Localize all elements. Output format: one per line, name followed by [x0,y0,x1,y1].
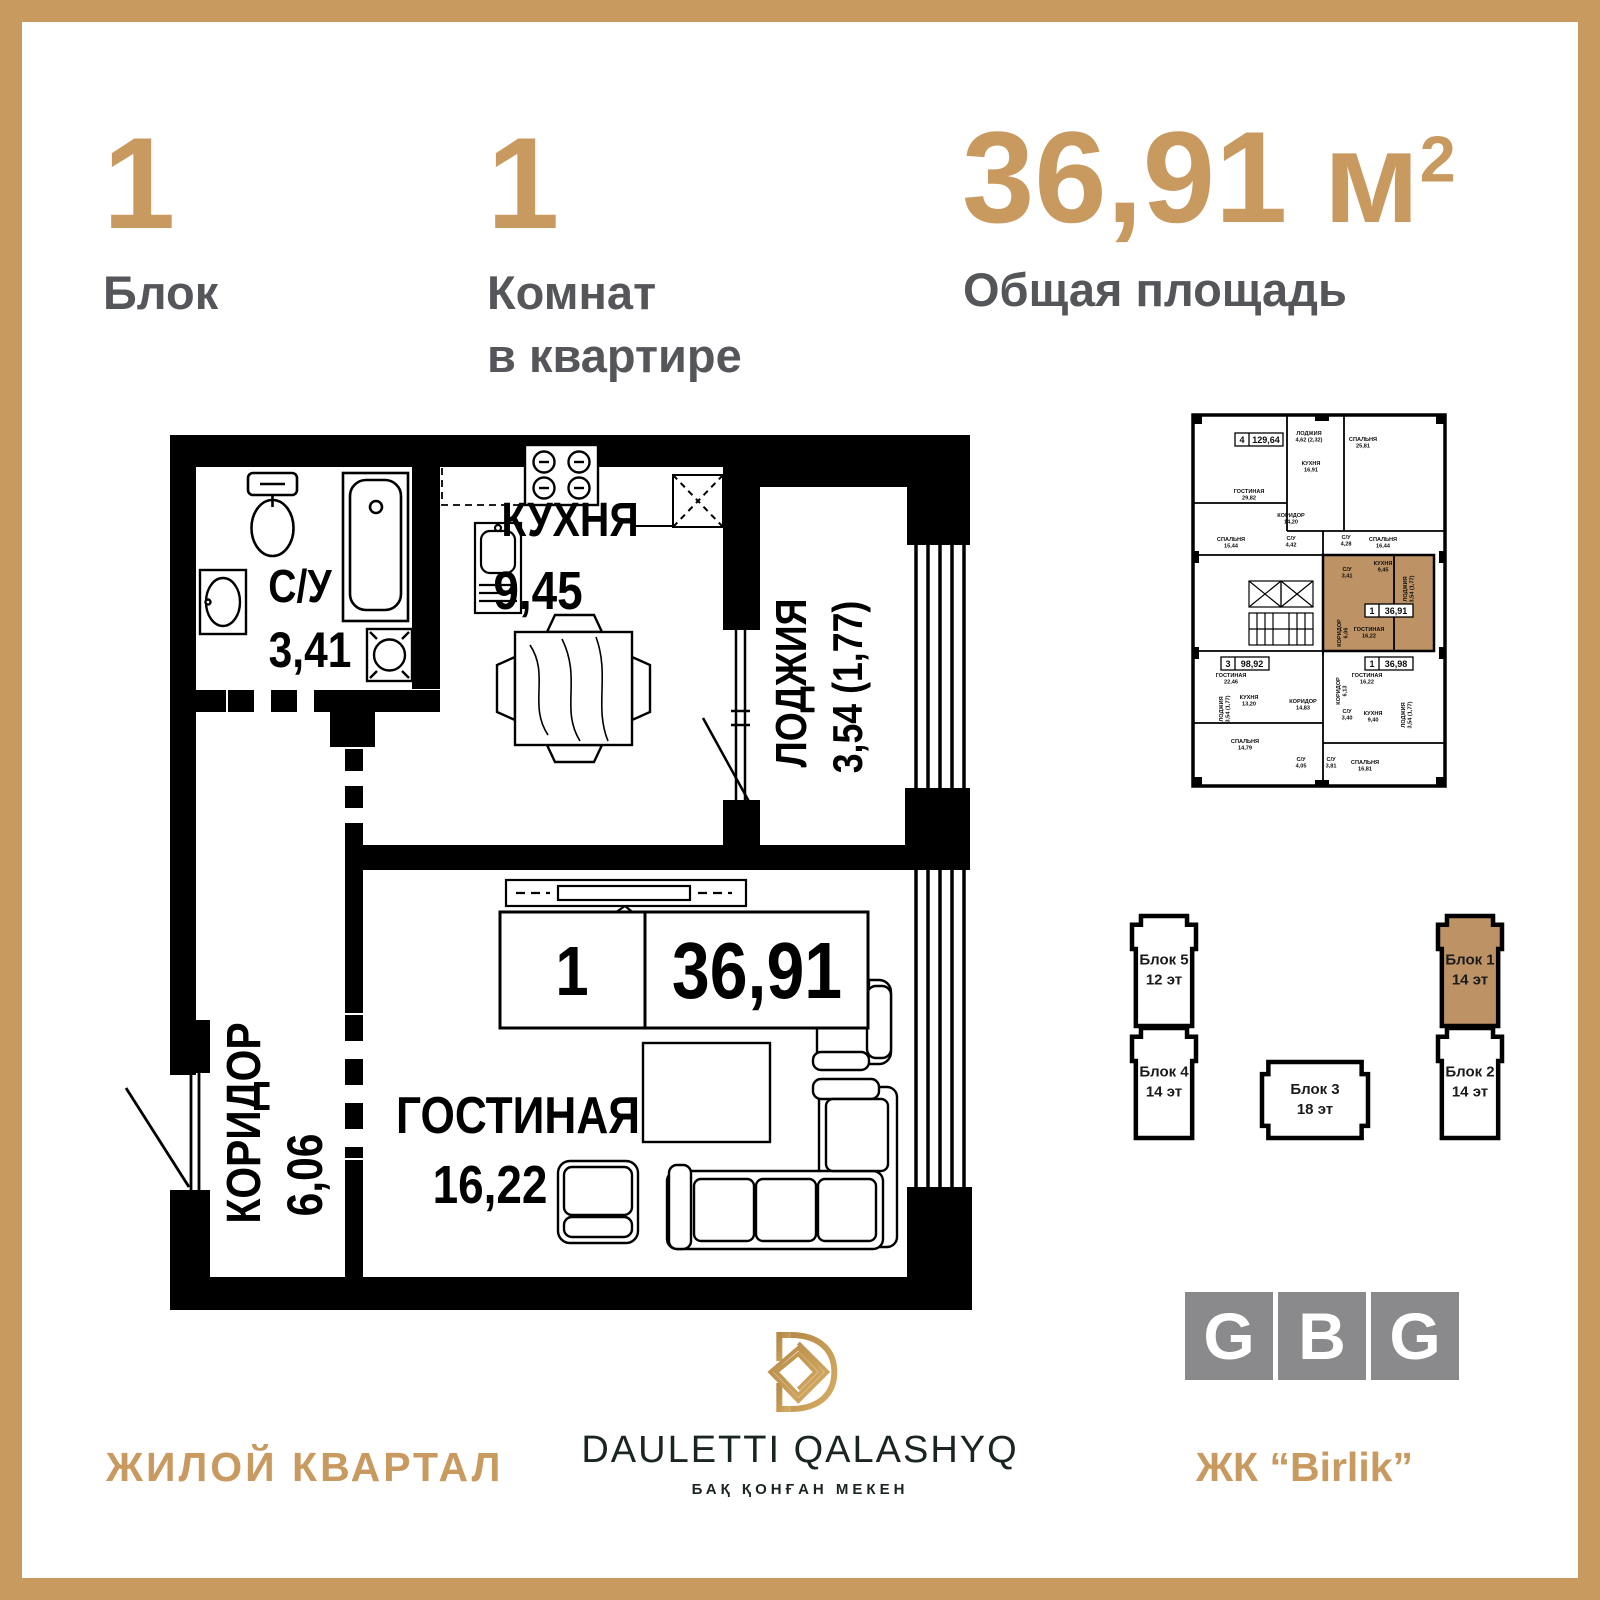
svg-text:25,81: 25,81 [1356,444,1370,450]
svg-text:КОРИДОР: КОРИДОР [1336,677,1342,705]
block-number: 1 [103,118,175,248]
svg-text:Блок 2: Блок 2 [1445,1063,1494,1080]
svg-text:4,28: 4,28 [1341,542,1352,548]
svg-text:С/У: С/У [1296,757,1306,763]
room-label-loggia: ЛОДЖИЯ 3,54 (1,77) [766,598,872,773]
svg-text:9,45: 9,45 [493,561,582,621]
svg-text:29,82: 29,82 [1242,496,1256,502]
svg-text:СПАЛЬНЯ: СПАЛЬНЯ [1369,537,1397,543]
room-label-corridor: КОРИДОР 6,06 [218,1022,333,1223]
svg-text:Блок 4: Блок 4 [1139,1063,1189,1080]
brand-logo: DAULETTI QALASHYQ БАҚ ҚОНҒАН МЕКЕН [581,1330,1018,1498]
block-item: Блок 318 эт [1262,1062,1368,1138]
brand-d-mark-icon [760,1330,840,1414]
svg-text:КУХНЯ: КУХНЯ [1302,461,1321,467]
room-label-bathroom: С/У 3,41 [268,561,351,678]
toilet-icon [248,473,297,556]
living-window-icon [916,870,964,1187]
svg-text:14,20: 14,20 [1284,520,1298,526]
svg-text:ЛОДЖИЯ: ЛОДЖИЯ [766,598,816,767]
complex-name-label: ЖК “Birlik” [1196,1444,1413,1491]
mini-room-label: С/У4,42 [1286,536,1297,549]
total-area-label: Общая площадь [963,262,1347,317]
svg-text:ГОСТИНАЯ: ГОСТИНАЯ [1216,673,1247,679]
svg-text:ГОСТИНАЯ: ГОСТИНАЯ [1354,627,1385,633]
svg-text:Блок 1: Блок 1 [1445,951,1494,968]
svg-text:9,40: 9,40 [1368,718,1379,724]
svg-text:С/У: С/У [1342,709,1352,715]
block-number-label: Блок [103,262,218,325]
svg-text:ГОСТИНАЯ: ГОСТИНАЯ [1234,489,1265,495]
residential-quarter-label: ЖИЛОЙ КВАРТАЛ [106,1444,503,1491]
svg-text:14,83: 14,83 [1296,706,1310,712]
svg-text:КОРИДОР: КОРИДОР [1289,699,1317,705]
svg-text:СПАЛЬНЯ: СПАЛЬНЯ [1349,437,1377,443]
block-item: Блок 512 эт [1132,916,1196,1026]
svg-text:КУХНЯ: КУХНЯ [1364,711,1383,717]
svg-text:КОРИДОР: КОРИДОР [1337,619,1343,647]
svg-text:3,54 (1,77): 3,54 (1,77) [1226,695,1232,722]
block-item: Блок 114 эт [1438,916,1502,1026]
svg-text:1: 1 [1369,606,1374,616]
svg-text:129,64: 129,64 [1252,435,1280,445]
rooms-number: 1 [487,118,559,248]
svg-text:16,91: 16,91 [1304,468,1318,474]
svg-text:1: 1 [1369,659,1374,669]
svg-text:КУХНЯ: КУХНЯ [501,494,638,547]
svg-text:3: 3 [1225,659,1230,669]
svg-text:ЛОДЖИЯ: ЛОДЖИЯ [1401,702,1407,727]
mini-room-label: ЛОДЖИЯ3,54 (1,77) [1401,701,1414,728]
svg-text:3,54 (1,77): 3,54 (1,77) [1410,575,1416,602]
svg-text:14 эт: 14 эт [1452,1083,1488,1100]
svg-text:98,92: 98,92 [1241,659,1264,669]
coffee-table-icon [643,1043,770,1142]
svg-text:22,46: 22,46 [1224,680,1238,686]
unit-area: 36,91 [672,926,842,1015]
mini-unit-label-box: 136,91 [1365,604,1413,617]
svg-text:16,44: 16,44 [1376,544,1391,550]
mini-floor-plan: 4129,64398,92136,91136,98 ГОСТИНАЯ29,82Л… [1190,413,1448,789]
svg-text:КОРИДОР: КОРИДОР [1277,513,1305,519]
svg-text:СПАЛЬНЯ: СПАЛЬНЯ [1217,537,1245,543]
svg-text:18 эт: 18 эт [1297,1101,1333,1118]
rooms-label-line2: в квартире [487,325,742,388]
unit-number: 1 [555,931,588,1010]
svg-text:ГОСТИНАЯ: ГОСТИНАЯ [1352,673,1383,679]
svg-text:16,22: 16,22 [1362,634,1376,640]
svg-text:ЛОДЖИЯ: ЛОДЖИЯ [1219,696,1225,721]
corner-cabinet-icon [632,475,723,527]
svg-text:13,20: 13,20 [1242,702,1256,708]
svg-text:3,40: 3,40 [1342,716,1353,722]
svg-text:16,81: 16,81 [1358,767,1372,773]
svg-text:Блок 5: Блок 5 [1139,951,1188,968]
svg-text:КОРИДОР: КОРИДОР [218,1022,271,1223]
mini-room-label: С/У3,41 [1342,567,1353,580]
mini-room-label: С/У4,05 [1296,757,1307,770]
total-area-value: 36,91 м2 [962,112,1456,242]
svg-text:Блок 3: Блок 3 [1290,1081,1339,1098]
mini-room-label: ЛОДЖИЯ4,62 (2,32) [1295,431,1322,444]
svg-text:3,41: 3,41 [269,622,352,678]
svg-text:12 эт: 12 эт [1146,971,1182,988]
mini-room-label: ЛОДЖИЯ3,54 (1,77) [1403,575,1416,602]
gbg-letter-square: G [1185,1292,1273,1380]
mini-unit-label-box: 136,98 [1365,657,1413,670]
gbg-letter-square: G [1371,1292,1459,1380]
mini-room-label: С/У3,40 [1342,709,1353,722]
svg-text:С/У: С/У [1342,567,1352,573]
svg-text:3,54 (1,77): 3,54 (1,77) [1408,701,1414,728]
svg-text:36,91: 36,91 [1385,606,1408,616]
svg-text:6,13: 6,13 [1343,686,1349,697]
mini-room-label: КУХНЯ16,91 [1302,461,1321,474]
block-item: Блок 414 эт [1132,1028,1196,1138]
svg-text:14 эт: 14 эт [1452,971,1488,988]
svg-text:4,05: 4,05 [1296,764,1307,770]
total-area-number: 36,91 м [962,104,1420,250]
svg-text:4,42: 4,42 [1286,543,1297,549]
svg-text:СПАЛЬНЯ: СПАЛЬНЯ [1231,739,1259,745]
svg-text:16,22: 16,22 [433,1155,548,1215]
washing-machine-icon [367,629,412,681]
rooms-label-line1: Комнат [487,262,742,325]
gbg-letter-square: B [1278,1292,1366,1380]
svg-text:С/У: С/У [1341,535,1351,541]
svg-text:9,45: 9,45 [1378,568,1389,574]
svg-text:6,06: 6,06 [1344,628,1350,639]
main-floor-plan: 1 36,91 С/У 3,41 КУХНЯ 9,45 ЛОДЖИЯ 3,54 … [110,435,975,1310]
svg-text:4,62 (2,32): 4,62 (2,32) [1295,438,1322,444]
svg-text:16,22: 16,22 [1360,680,1374,686]
svg-text:6,06: 6,06 [277,1134,333,1217]
svg-text:3,41: 3,41 [1342,574,1353,580]
bathroom-sink-icon [200,570,246,634]
entrance-door-icon [126,1073,199,1190]
bathtub-icon [343,473,408,621]
mini-room-label: С/У4,28 [1341,535,1352,548]
dining-table-icon [497,615,650,762]
svg-text:ГОСТИНАЯ: ГОСТИНАЯ [396,1087,640,1145]
svg-text:ЛОДЖИЯ: ЛОДЖИЯ [1296,431,1321,437]
total-area-superscript: 2 [1420,123,1456,196]
mini-unit-label-box: 4129,64 [1235,433,1283,446]
mini-room-label: ЛОДЖИЯ3,54 (1,77) [1219,695,1232,722]
mini-unit-label-box: 398,92 [1221,657,1269,670]
mini-room-label: КУХНЯ13,20 [1240,695,1259,708]
svg-text:3,81: 3,81 [1326,764,1337,770]
svg-text:КУХНЯ: КУХНЯ [1240,695,1259,701]
svg-text:14,79: 14,79 [1238,746,1252,752]
rooms-number-label: Комнат в квартире [487,262,742,387]
brand-tagline: БАҚ ҚОНҒАН МЕКЕН [581,1481,1018,1498]
gbg-logo: G B G [1185,1292,1459,1380]
svg-text:14 эт: 14 эт [1146,1083,1182,1100]
svg-text:С/У: С/У [1286,536,1296,542]
loggia-window-icon [916,545,964,788]
svg-text:С/У: С/У [1326,757,1336,763]
brand-name: DAULETTI QALASHYQ [581,1429,1018,1472]
block-item: Блок 214 эт [1438,1028,1502,1138]
svg-text:36,98: 36,98 [1385,659,1408,669]
armchair-icon [558,1161,638,1243]
blocks-diagram: Блок 512 этБлок 414 этБлок 318 этБлок 11… [1100,904,1520,1154]
svg-text:15,44: 15,44 [1224,544,1239,550]
svg-text:КУХНЯ: КУХНЯ [1374,561,1393,567]
svg-text:4: 4 [1239,435,1244,445]
tv-unit-icon [506,880,746,906]
svg-text:СПАЛЬНЯ: СПАЛЬНЯ [1351,760,1379,766]
mini-room-label: С/У3,81 [1326,757,1337,770]
poster-canvas: 1 Блок 1 Комнат в квартире 36,91 м2 Обща… [0,0,1600,1600]
svg-text:ЛОДЖИЯ: ЛОДЖИЯ [1403,576,1409,601]
svg-text:3,54 (1,77): 3,54 (1,77) [825,601,871,774]
unit-label-box: 1 36,91 [500,912,868,1028]
loggia-door-icon [703,630,752,807]
svg-text:С/У: С/У [268,561,332,613]
